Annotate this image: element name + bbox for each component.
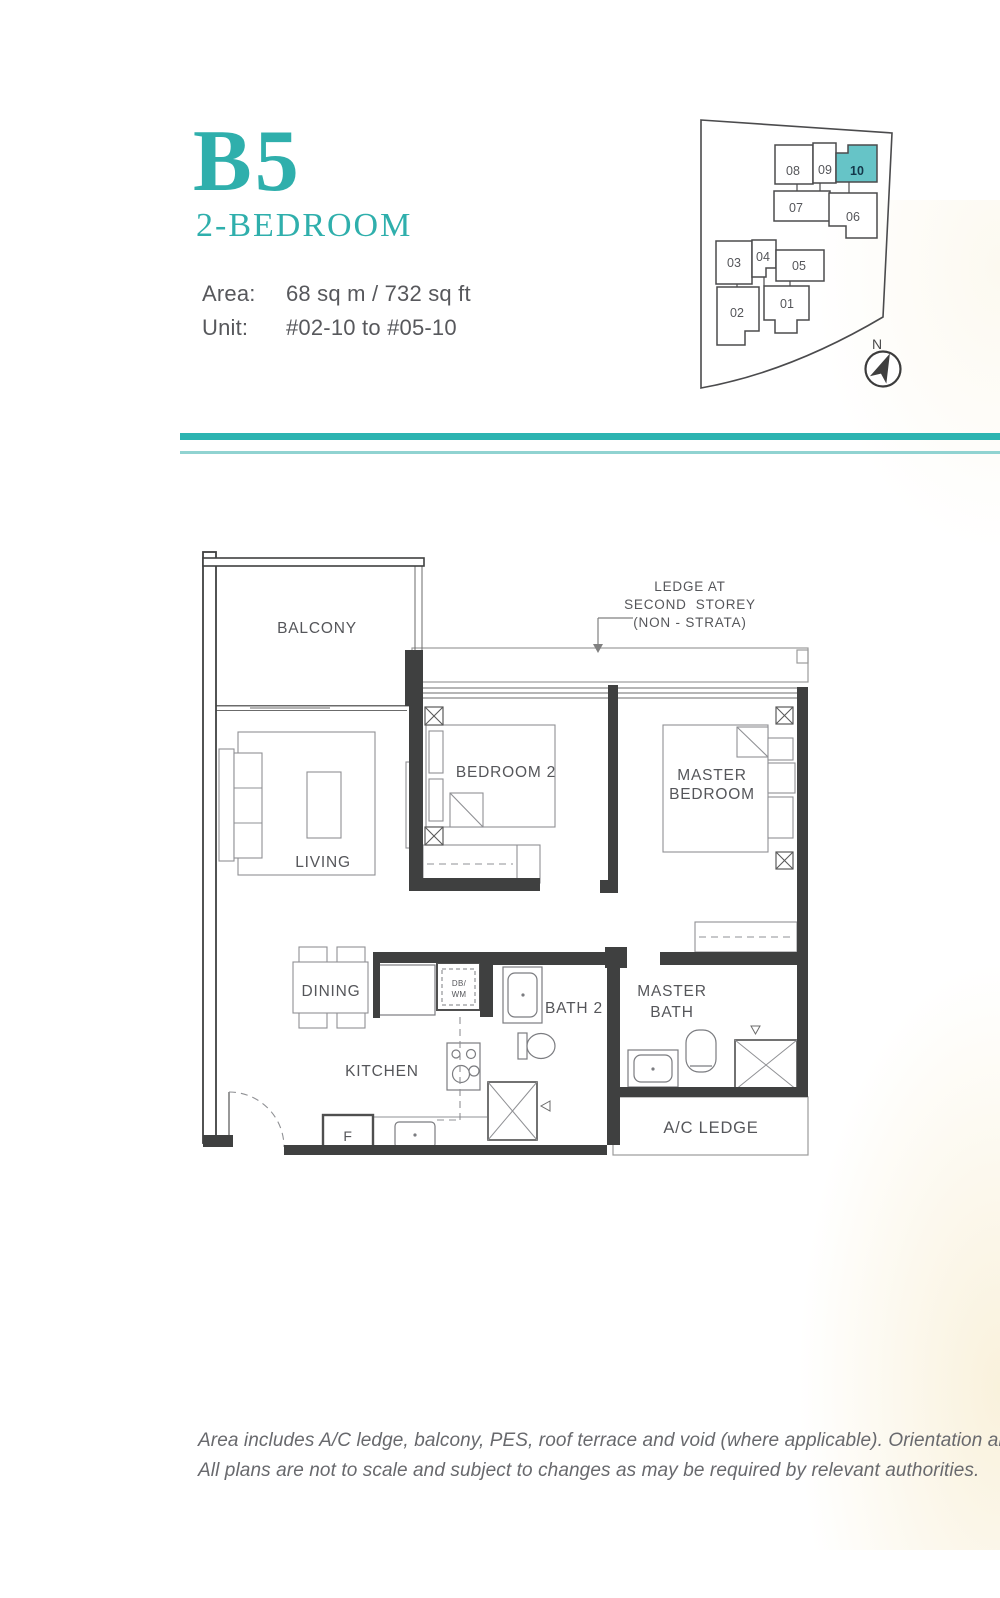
bath2-toilet xyxy=(518,1033,555,1059)
keyplan-unit-08-label: 08 xyxy=(786,164,800,178)
keyplan-unit-03-label: 03 xyxy=(727,256,741,270)
keyplan-unit-02-label: 02 xyxy=(730,306,744,320)
area-value: 68 sq m / 732 sq ft xyxy=(286,281,471,306)
master-bath-vanity xyxy=(628,1050,678,1087)
disclaimer-line2: All plans are not to scale and subject t… xyxy=(198,1460,979,1482)
area-spec-line: Area:68 sq m / 732 sq ft xyxy=(202,281,471,307)
keyplan-unit-09-label: 09 xyxy=(818,163,832,177)
separator-line-light xyxy=(180,451,1000,454)
room-label-bath2: BATH 2 xyxy=(545,1000,603,1017)
master-bath-shower xyxy=(735,1026,797,1090)
unit-value: #02-10 to #05-10 xyxy=(286,315,457,340)
master-bath-toilet xyxy=(686,1030,716,1072)
master-wardrobe xyxy=(695,922,797,952)
room-label-living: LIVING xyxy=(295,854,351,871)
bath2-vanity xyxy=(503,967,542,1023)
label-fridge: F xyxy=(343,1128,352,1144)
plan-code-title: B5 xyxy=(193,118,302,206)
kitchen-counter xyxy=(375,965,435,1015)
bath2-door-marker xyxy=(541,1101,550,1111)
coffee-table xyxy=(307,772,341,838)
sofa xyxy=(219,749,262,861)
entrance-door xyxy=(229,1092,284,1147)
ledge-annotation-line1: LEDGE AT xyxy=(654,579,725,594)
floor-plan: BALCONY LIVING BEDROOM 2 MASTER BEDROOM … xyxy=(185,535,825,1175)
room-label-master-bedroom-2: BEDROOM xyxy=(669,786,755,803)
separator-line-dark xyxy=(180,433,1000,440)
room-label-kitchen: KITCHEN xyxy=(345,1063,419,1080)
north-compass: N xyxy=(866,336,901,387)
kitchen-sink xyxy=(373,1117,487,1148)
bedroom2-wardrobe xyxy=(423,845,540,883)
room-label-balcony: BALCONY xyxy=(277,620,357,637)
keyplan-unit-01-label: 01 xyxy=(780,297,794,311)
room-label-dining: DINING xyxy=(301,983,360,1000)
unit-label: Unit: xyxy=(202,315,286,341)
area-label: Area: xyxy=(202,281,286,307)
label-db-2: WM xyxy=(452,990,467,999)
bath2-shower xyxy=(488,1082,550,1140)
keyplan-unit-05-label: 05 xyxy=(792,259,806,273)
master-bath-door-marker xyxy=(751,1026,760,1034)
ledge-annotation-line3: (NON - STRATA) xyxy=(633,615,746,630)
keyplan-unit-04-label: 04 xyxy=(756,250,770,264)
balcony-right-edge xyxy=(415,566,422,652)
unit-spec-line: Unit:#02-10 to #05-10 xyxy=(202,315,457,341)
room-label-master-bedroom-1: MASTER xyxy=(677,767,746,784)
room-label-master-bath-2: BATH xyxy=(650,1004,693,1021)
stove-hob xyxy=(447,1043,480,1090)
keyplan-unit-07-label: 07 xyxy=(789,201,803,215)
ledge-notch xyxy=(797,650,808,663)
room-label-ac-ledge: A/C LEDGE xyxy=(663,1119,758,1137)
north-label: N xyxy=(872,336,882,352)
keyplan-unit-10-label: 10 xyxy=(850,164,864,178)
key-plan: 08 09 10 07 06 03 04 05 02 01 N xyxy=(680,110,905,400)
room-label-master-bath-1: MASTER xyxy=(637,983,706,1000)
plan-type-subtitle: 2-BEDROOM xyxy=(196,207,412,245)
disclaimer-line1: Area includes A/C ledge, balcony, PES, r… xyxy=(198,1430,1000,1452)
ledge-annotation-line2: SECOND STOREY xyxy=(624,597,756,612)
room-label-bedroom2: BEDROOM 2 xyxy=(456,764,556,781)
keyplan-unit-06-label: 06 xyxy=(846,210,860,224)
ledge-outline xyxy=(412,648,808,682)
label-db-1: DB/ xyxy=(452,979,467,988)
